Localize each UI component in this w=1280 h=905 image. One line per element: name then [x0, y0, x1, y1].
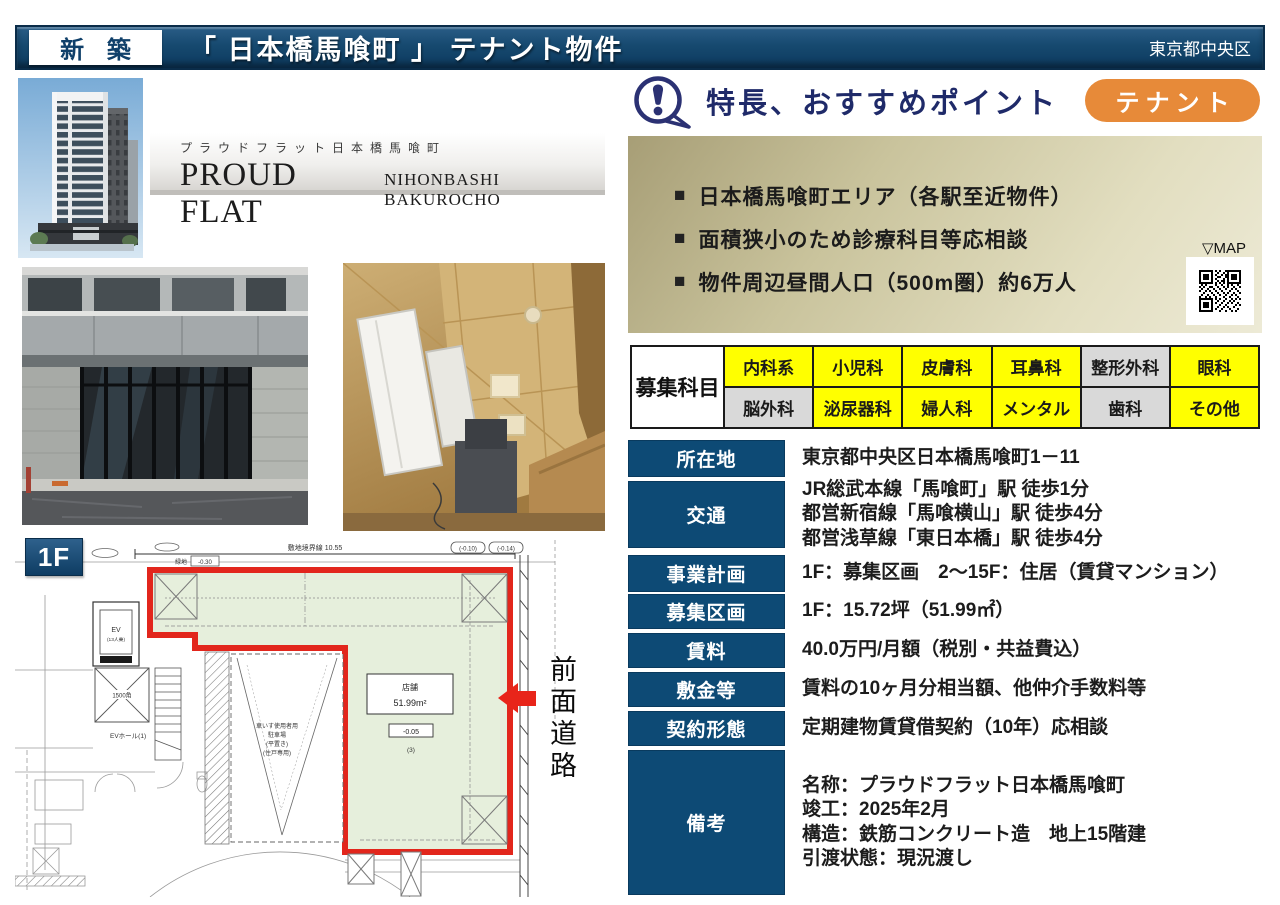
bullet-square-icon: ■ [674, 185, 686, 207]
front-road-label: 前面道路 [542, 655, 581, 783]
svg-text:(13人乗): (13人乗) [107, 636, 126, 643]
detail-row-contract: 契約形態 定期建物賃貸借契約（10年）応相談 [628, 711, 1262, 746]
detail-label: 所在地 [628, 440, 785, 477]
department-cell: 耳鼻科 [993, 347, 1082, 386]
brand-name-kana: プラウドフラット日本橋馬喰町 [180, 139, 605, 156]
detail-value: 40.0万円/月額（税別・共益費込） [785, 633, 1262, 668]
department-cell: メンタル [993, 388, 1082, 427]
hatch-strip [205, 652, 229, 844]
detail-row-deposit: 敷金等 賃料の10ヶ月分相当額、他仲介手数料等 [628, 672, 1262, 707]
department-cell: 婦人科 [903, 388, 992, 427]
detail-row-project: 事業計画 1F：募集区画 2～15F：住居（賃貸マンション） [628, 555, 1262, 592]
detail-row-section: 募集区画 1F：15.72坪（51.99㎡） [628, 594, 1262, 629]
detail-value: 名称：プラウドフラット日本橋馬喰町 竣工：2025年2月 構造：鉄筋コンクリート… [785, 750, 1262, 895]
header-area-label: 東京都中央区 [1149, 27, 1251, 68]
departments-row: 脳外科 泌尿器科 婦人科 メンタル 歯科 その他 [725, 388, 1258, 427]
svg-text:-0.30: -0.30 [198, 560, 212, 566]
svg-text:緑地: 緑地 [175, 558, 187, 566]
detail-label: 契約形態 [628, 711, 785, 746]
svg-text:51.99m²: 51.99m² [393, 698, 426, 708]
department-cell: 整形外科 [1082, 347, 1171, 386]
feature-bullets: ■ 日本橋馬喰町エリア（各駅至近物件） ■ 面積狭小のため診療科目等応相談 ■ … [674, 174, 1077, 303]
detail-label: 敷金等 [628, 672, 785, 707]
exterior-photo [22, 267, 308, 525]
department-cell: 泌尿器科 [814, 388, 903, 427]
column-box: 1500角 [95, 668, 149, 722]
building-render-photo [18, 78, 143, 258]
detail-label: 備考 [628, 750, 785, 895]
feature-bullet: ■ 面積狭小のため診療科目等応相談 [674, 217, 1077, 260]
svg-text:EV: EV [111, 627, 121, 634]
detail-label: 賃料 [628, 633, 785, 668]
department-cell: 小児科 [814, 347, 903, 386]
svg-text:車いす使用者用: 車いす使用者用 [256, 722, 298, 730]
feature-box: ■ 日本橋馬喰町エリア（各駅至近物件） ■ 面積狭小のため診療科目等応相談 ■ … [628, 136, 1262, 333]
svg-text:(-0.14): (-0.14) [497, 547, 515, 553]
detail-value: JR総武本線「馬喰町」駅 徒歩1分 都営新宿線「馬喰横山」駅 徒歩4分 都営浅草… [785, 481, 1262, 548]
detail-label: 事業計画 [628, 555, 785, 592]
svg-text:(3): (3) [407, 747, 415, 754]
ev-hall-label: EVホール(1) [110, 732, 146, 740]
stairs [155, 668, 181, 760]
map-label: ▽MAP [1202, 239, 1246, 257]
svg-text:(平置き): (平置き) [266, 741, 288, 748]
svg-text:(-0.10): (-0.10) [459, 547, 477, 553]
detail-label: 募集区画 [628, 594, 785, 629]
page-title: 「 日本橋馬喰町 」 テナント物件 [189, 27, 624, 68]
floor-plan: 敷地境界線 10.55 (-0.10) (-0.14) 緑地 -0.30 [15, 540, 605, 897]
svg-text:(住戸専用): (住戸専用) [263, 749, 291, 757]
new-construction-badge: 新 築 [29, 30, 162, 65]
department-cell: 内科系 [725, 347, 814, 386]
svg-text:-0.05: -0.05 [403, 729, 419, 736]
detail-row-location: 所在地 東京都中央区日本橋馬喰町1－11 [628, 440, 1262, 477]
floor-badge: 1F [25, 538, 83, 576]
bullet-square-icon: ■ [674, 228, 686, 250]
departments-table: 募集科目 内科系 小児科 皮膚科 耳鼻科 整形外科 眼科 脳外科 泌尿器科 婦人… [630, 345, 1260, 429]
detail-value: 定期建物賃貸借契約（10年）応相談 [785, 711, 1262, 746]
brand-name-en: PROUD FLAT [180, 157, 374, 231]
detail-value: 1F：15.72坪（51.99㎡） [785, 594, 1262, 629]
interior-photo [343, 263, 605, 531]
exclamation-bubble-icon [630, 74, 694, 137]
map-qr-code [1186, 257, 1254, 325]
feature-bullet-text: 面積狭小のため診療科目等応相談 [698, 224, 1028, 254]
department-cell: 歯科 [1082, 388, 1171, 427]
feature-section-title: 特長、おすすめポイント [706, 80, 1058, 122]
feature-bullet: ■ 日本橋馬喰町エリア（各駅至近物件） [674, 174, 1077, 217]
parking-bay: 車いす使用者用 駐車場 (平置き) (住戸専用) [231, 654, 343, 842]
flyer-page: 新 築 「 日本橋馬喰町 」 テナント物件 東京都中央区 [0, 0, 1280, 905]
svg-text:敷地境界線 10.55: 敷地境界線 10.55 [288, 543, 343, 552]
department-cell: 皮膚科 [903, 347, 992, 386]
bullet-square-icon: ■ [674, 271, 686, 293]
header-bar: 新 築 「 日本橋馬喰町 」 テナント物件 東京都中央区 [15, 25, 1265, 70]
tenant-tag-badge: テナント [1085, 79, 1260, 122]
svg-text:店舗: 店舗 [402, 682, 418, 692]
department-cell: 眼科 [1171, 347, 1258, 386]
elevator-shaft: EV (13人乗) [93, 602, 139, 666]
feature-bullet-text: 日本橋馬喰町エリア（各駅至近物件） [698, 181, 1072, 211]
detail-value: 賃料の10ヶ月分相当額、他仲介手数料等 [785, 672, 1262, 707]
svg-text:駐車場: 駐車場 [268, 731, 286, 739]
department-cell: その他 [1171, 388, 1258, 427]
detail-row-notes: 備考 名称：プラウドフラット日本橋馬喰町 竣工：2025年2月 構造：鉄筋コンク… [628, 750, 1262, 895]
svg-text:1500角: 1500角 [112, 692, 131, 700]
brand-logo: プラウドフラット日本橋馬喰町 PROUD FLAT NIHONBASHI BAK… [150, 133, 605, 195]
departments-row: 内科系 小児科 皮膚科 耳鼻科 整形外科 眼科 [725, 347, 1258, 388]
detail-value: 1F：募集区画 2～15F：住居（賃貸マンション） [785, 555, 1262, 592]
department-cell: 脳外科 [725, 388, 814, 427]
detail-row-rent: 賃料 40.0万円/月額（税別・共益費込） [628, 633, 1262, 668]
departments-header: 募集科目 [632, 347, 725, 427]
brand-subname-en: NIHONBASHI BAKUROCHO [384, 170, 605, 210]
detail-label: 交通 [628, 481, 785, 548]
feature-bullet: ■ 物件周辺昼間人口（500m圏）約6万人 [674, 260, 1077, 303]
detail-row-access: 交通 JR総武本線「馬喰町」駅 徒歩1分 都営新宿線「馬喰横山」駅 徒歩4分 都… [628, 481, 1262, 548]
detail-value: 東京都中央区日本橋馬喰町1－11 [785, 440, 1262, 477]
feature-bullet-text: 物件周辺昼間人口（500m圏）約6万人 [698, 267, 1076, 297]
